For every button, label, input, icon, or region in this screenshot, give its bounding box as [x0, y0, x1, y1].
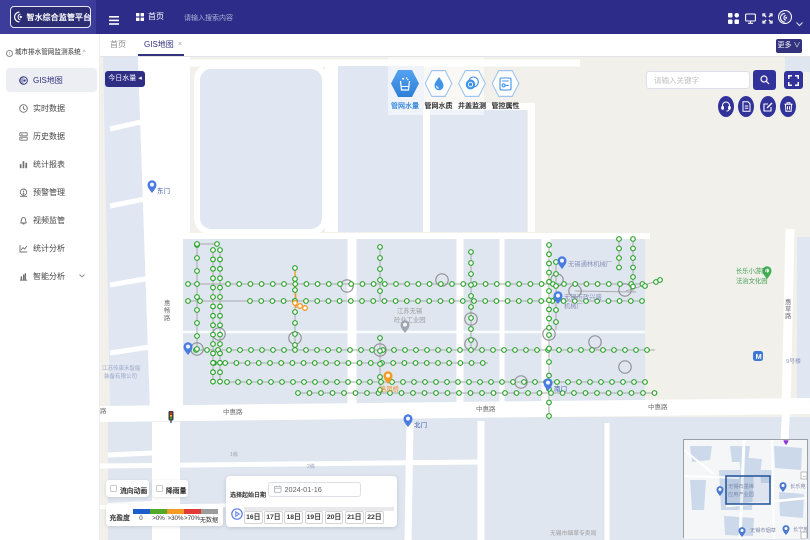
svg-text:装备有限公司: 装备有限公司: [104, 372, 137, 380]
svg-text:南门: 南门: [554, 384, 567, 393]
svg-text:⇔: ⇔: [802, 474, 807, 479]
svg-text:中惠路: 中惠路: [223, 407, 243, 416]
svg-text:砼业工业园: 砼业工业园: [394, 315, 425, 324]
svg-text:北门: 北门: [414, 420, 427, 429]
svg-text:无锡市烟草: 无锡市烟草: [750, 526, 776, 534]
svg-text:中惠路: 中惠路: [648, 402, 668, 411]
svg-text:惠畅路: 惠畅路: [164, 298, 171, 322]
svg-text:洛凤桥: 洛凤桥: [380, 384, 400, 393]
svg-text:江苏无锡: 江苏无锡: [397, 306, 422, 315]
svg-text:M: M: [756, 352, 762, 361]
svg-text:江苏传康禾智能: 江苏传康禾智能: [102, 364, 141, 372]
svg-text:1栋: 1栋: [230, 450, 238, 458]
svg-text:2栋: 2栋: [307, 462, 315, 470]
svg-text:无锡通林机械厂: 无锡通林机械厂: [568, 259, 612, 268]
svg-text:路: 路: [100, 406, 107, 415]
svg-text:无锡市政兴盛: 无锡市政兴盛: [564, 292, 602, 301]
svg-text:长乐苑: 长乐苑: [790, 482, 806, 490]
svg-text:惠草路: 惠草路: [785, 297, 792, 320]
svg-text:法治文化园: 法治文化园: [736, 276, 767, 285]
svg-text:中惠路: 中惠路: [476, 404, 496, 413]
svg-text:长乐小游园: 长乐小游园: [736, 266, 767, 275]
svg-text:9号楼: 9号楼: [786, 357, 801, 365]
svg-text:机械厂: 机械厂: [564, 301, 583, 310]
svg-text:无锡石墨烯: 无锡石墨烯: [728, 482, 754, 490]
svg-text:东门: 东门: [157, 186, 170, 195]
svg-text:无锡市烟草专卖局: 无锡市烟草专卖局: [550, 529, 597, 537]
svg-text:应用产业园: 应用产业园: [728, 490, 754, 498]
